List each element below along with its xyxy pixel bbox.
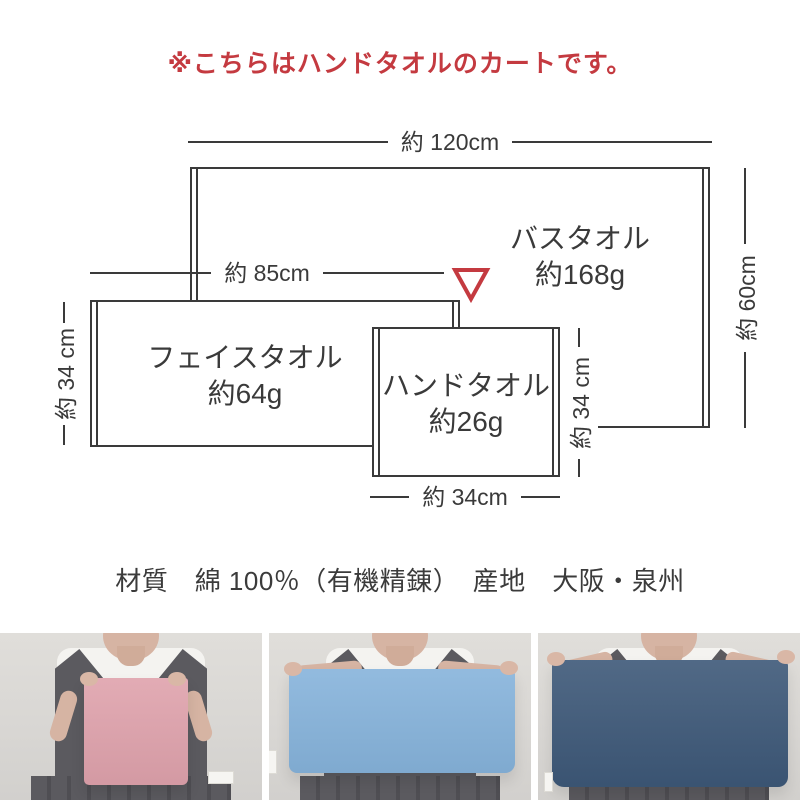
person-hand <box>80 672 98 686</box>
bath-towel-height-label-box: 約 60cm <box>732 244 758 352</box>
pink-hand-towel <box>84 678 188 785</box>
dimension-line-segment <box>512 141 712 143</box>
face-towel-weight: 約64g <box>120 376 370 412</box>
dimension-line-segment <box>63 302 65 323</box>
dimension-line-segment <box>90 272 211 274</box>
hand-towel-photo <box>0 633 262 800</box>
dimension-line-segment <box>578 459 580 478</box>
hand-towel-width-label: 約 34cm <box>422 478 508 512</box>
towel-product-info-image: ※こちらはハンドタオルのカートです。 約 120cm 約 85cm <box>0 0 800 800</box>
red-triangle-down-icon <box>451 266 491 304</box>
face-towel-width-dimension: 約 85cm <box>90 262 444 284</box>
person-hand <box>500 661 518 675</box>
material-origin-text: 材質 綿 100％（有機精錬） 産地 大阪・泉州 <box>0 561 800 598</box>
towel-photo-strip <box>0 633 800 800</box>
towel-tag <box>208 771 234 784</box>
navy-bath-towel <box>552 660 788 787</box>
bath-towel-width-dimension: 約 120cm <box>188 131 712 153</box>
bath-towel-height-dimension: 約 60cm <box>732 168 758 428</box>
face-towel-photo <box>269 633 531 800</box>
person-neck <box>386 646 414 666</box>
dimension-line-segment <box>370 496 409 498</box>
bath-towel-photo <box>538 633 800 800</box>
person-hand <box>547 652 565 666</box>
face-towel-height-label-box: 約 34 cm <box>51 323 77 425</box>
face-towel-width-label: 約 85cm <box>224 254 310 288</box>
dimension-line-segment <box>188 141 388 143</box>
hand-towel-height-label-box: 約 34 cm <box>560 347 598 459</box>
towel-tag <box>544 772 553 792</box>
person-skirt <box>300 776 500 800</box>
dimension-line-segment <box>63 425 65 446</box>
dimension-line-segment <box>578 328 580 347</box>
bath-towel-height-label: 約 60cm <box>728 255 762 341</box>
hand-towel-cart-notice: ※こちらはハンドタオルのカートです。 <box>0 44 800 80</box>
hand-towel-height-label: 約 34 cm <box>562 356 596 448</box>
dimension-line-segment <box>744 352 746 428</box>
face-towel-height-dimension: 約 34 cm <box>51 302 77 445</box>
face-towel-label: フェイスタオル 約64g <box>120 340 370 412</box>
hand-towel-width-dimension: 約 34cm <box>370 486 560 508</box>
person-hand <box>777 650 795 664</box>
person-neck <box>117 646 145 666</box>
hand-towel-weight: 約26g <box>374 404 558 440</box>
face-towel-name: フェイスタオル <box>120 340 370 376</box>
hand-towel-name: ハンドタオル <box>374 368 558 404</box>
hand-towel-height-dimension: 約 34 cm <box>560 328 598 477</box>
bath-towel-weight: 約168g <box>455 257 705 293</box>
blue-face-towel <box>289 669 515 773</box>
towel-hem-line <box>96 302 98 445</box>
dimension-line-segment <box>323 272 444 274</box>
hand-towel-label: ハンドタオル 約26g <box>374 368 558 440</box>
person-hand <box>168 672 186 686</box>
dimension-line-segment <box>744 168 746 244</box>
bath-towel-width-label: 約 120cm <box>401 123 499 157</box>
dimension-line-segment <box>521 496 560 498</box>
bath-towel-name: バスタオル <box>455 221 705 257</box>
towel-tag <box>269 750 277 774</box>
bath-towel-label: バスタオル 約168g <box>455 221 705 293</box>
person-hand <box>284 662 302 676</box>
towel-hem-line <box>702 169 704 426</box>
face-towel-height-label: 約 34 cm <box>47 327 81 419</box>
